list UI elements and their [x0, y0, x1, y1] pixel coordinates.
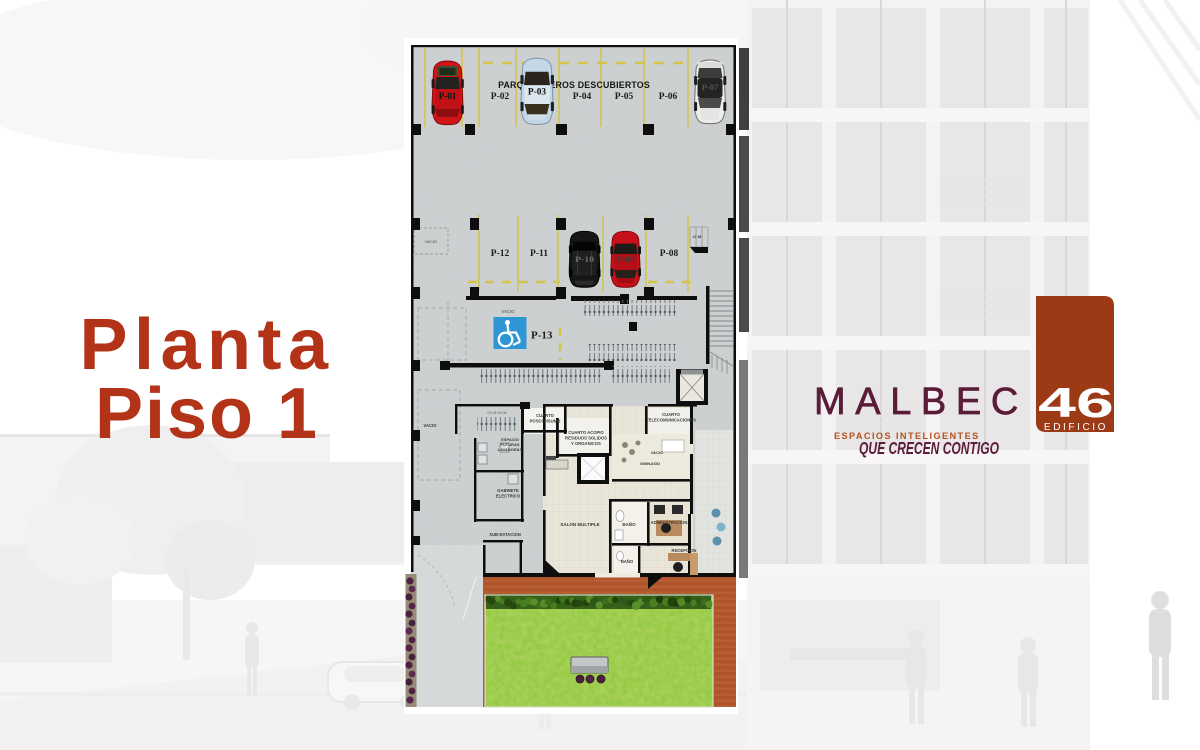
svg-text:P-11: P-11: [530, 249, 548, 259]
svg-text:CUARTO: CUARTO: [536, 413, 555, 418]
svg-text:GIMNASIO: GIMNASIO: [640, 461, 660, 466]
svg-text:VACIO: VACIO: [651, 450, 663, 455]
svg-text:GABINETE: GABINETE: [497, 488, 519, 493]
svg-text:P-02: P-02: [491, 92, 510, 102]
svg-text:P-03: P-03: [528, 88, 546, 98]
svg-text:VACIO: VACIO: [424, 423, 438, 428]
svg-text:P-09: P-09: [616, 254, 635, 264]
svg-text:CUARTO: CUARTO: [662, 412, 681, 417]
svg-text:MALBEC: MALBEC: [814, 381, 1028, 423]
svg-text:CUARTO ACOPIO: CUARTO ACOPIO: [568, 430, 604, 435]
svg-text:P-07: P-07: [702, 82, 719, 92]
svg-text:LAVADORAS: LAVADORAS: [498, 447, 523, 452]
svg-text:46: 46: [1038, 379, 1114, 426]
svg-text:P-05: P-05: [615, 92, 634, 102]
svg-text:03 04 05 06: 03 04 05 06: [488, 411, 507, 415]
svg-text:P-06: P-06: [659, 92, 678, 102]
svg-text:POSCONSUMO: POSCONSUMO: [530, 419, 561, 424]
svg-text:VACIO: VACIO: [502, 309, 515, 314]
svg-text:RECEPCION: RECEPCION: [672, 548, 697, 553]
svg-text:QUE CRECEN CONTIGO: QUE CRECEN CONTIGO: [859, 439, 999, 459]
svg-text:P-10: P-10: [575, 256, 594, 265]
svg-text:VACIO: VACIO: [425, 239, 437, 244]
svg-text:TELECOMUNICACIONES: TELECOMUNICACIONES: [646, 418, 696, 423]
svg-text:BAÑO: BAÑO: [622, 521, 636, 527]
svg-text:SUB-ESTACION: SUB-ESTACION: [489, 532, 521, 537]
svg-text:P-12: P-12: [491, 249, 510, 259]
svg-text:P-08: P-08: [660, 249, 679, 259]
svg-text:BAÑO: BAÑO: [621, 559, 634, 564]
svg-text:ADMINISTRACION: ADMINISTRACION: [651, 520, 688, 525]
svg-text:RESIDUOS SOLIDOS: RESIDUOS SOLIDOS: [565, 436, 607, 441]
svg-text:ELECTRICO: ELECTRICO: [496, 494, 521, 499]
svg-text:P-13: P-13: [531, 330, 553, 342]
svg-text:47 48: 47 48: [693, 235, 702, 239]
svg-text:EDIFICIO: EDIFICIO: [1044, 422, 1108, 433]
svg-text:Y ORGANICOS: Y ORGANICOS: [571, 441, 601, 446]
svg-text:SALON MULTIPLE: SALON MULTIPLE: [560, 522, 599, 527]
svg-text:P-04: P-04: [573, 92, 592, 102]
svg-text:P-01: P-01: [439, 91, 457, 101]
